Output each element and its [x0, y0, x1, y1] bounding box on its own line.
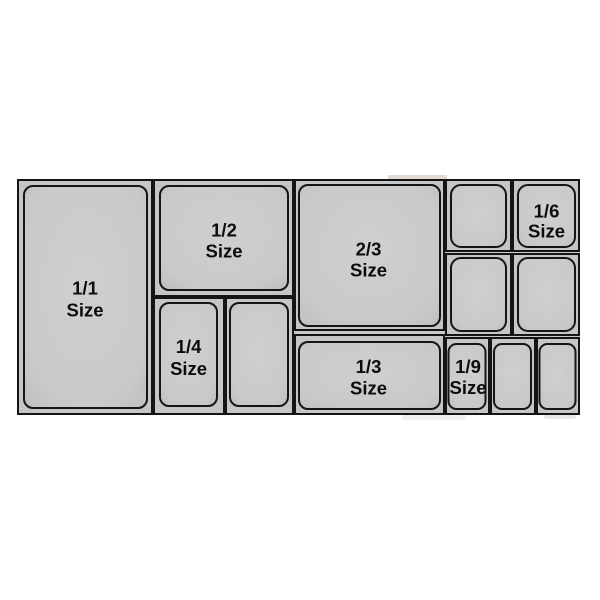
- svg-text:1/2: 1/2: [211, 219, 237, 240]
- svg-text:2/3: 2/3: [356, 239, 382, 260]
- svg-text:1/3: 1/3: [356, 356, 382, 377]
- svg-text:Size: Size: [449, 377, 486, 398]
- svg-text:Size: Size: [66, 299, 103, 320]
- svg-text:Size: Size: [170, 358, 207, 379]
- svg-text:Size: Size: [528, 220, 565, 241]
- svg-text:Size: Size: [205, 240, 242, 261]
- svg-text:1/4: 1/4: [176, 336, 202, 357]
- svg-text:1/6: 1/6: [534, 200, 560, 221]
- svg-text:1/1: 1/1: [72, 278, 98, 299]
- svg-text:Size: Size: [350, 260, 387, 281]
- svg-text:Size: Size: [350, 378, 387, 399]
- svg-text:1/9: 1/9: [455, 356, 481, 377]
